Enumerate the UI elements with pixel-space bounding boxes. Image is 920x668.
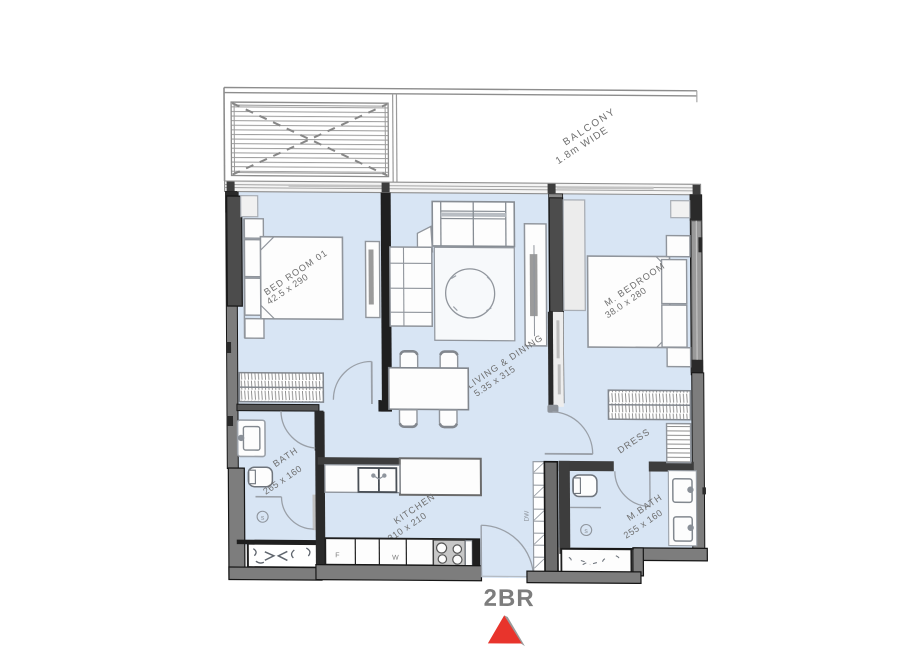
svg-text:s: s	[584, 528, 588, 535]
svg-text:2BR: 2BR	[484, 585, 535, 612]
svg-text:s: s	[261, 515, 265, 522]
svg-text:W: W	[392, 555, 399, 562]
svg-text:DW: DW	[524, 510, 531, 522]
svg-text:F: F	[335, 552, 339, 559]
